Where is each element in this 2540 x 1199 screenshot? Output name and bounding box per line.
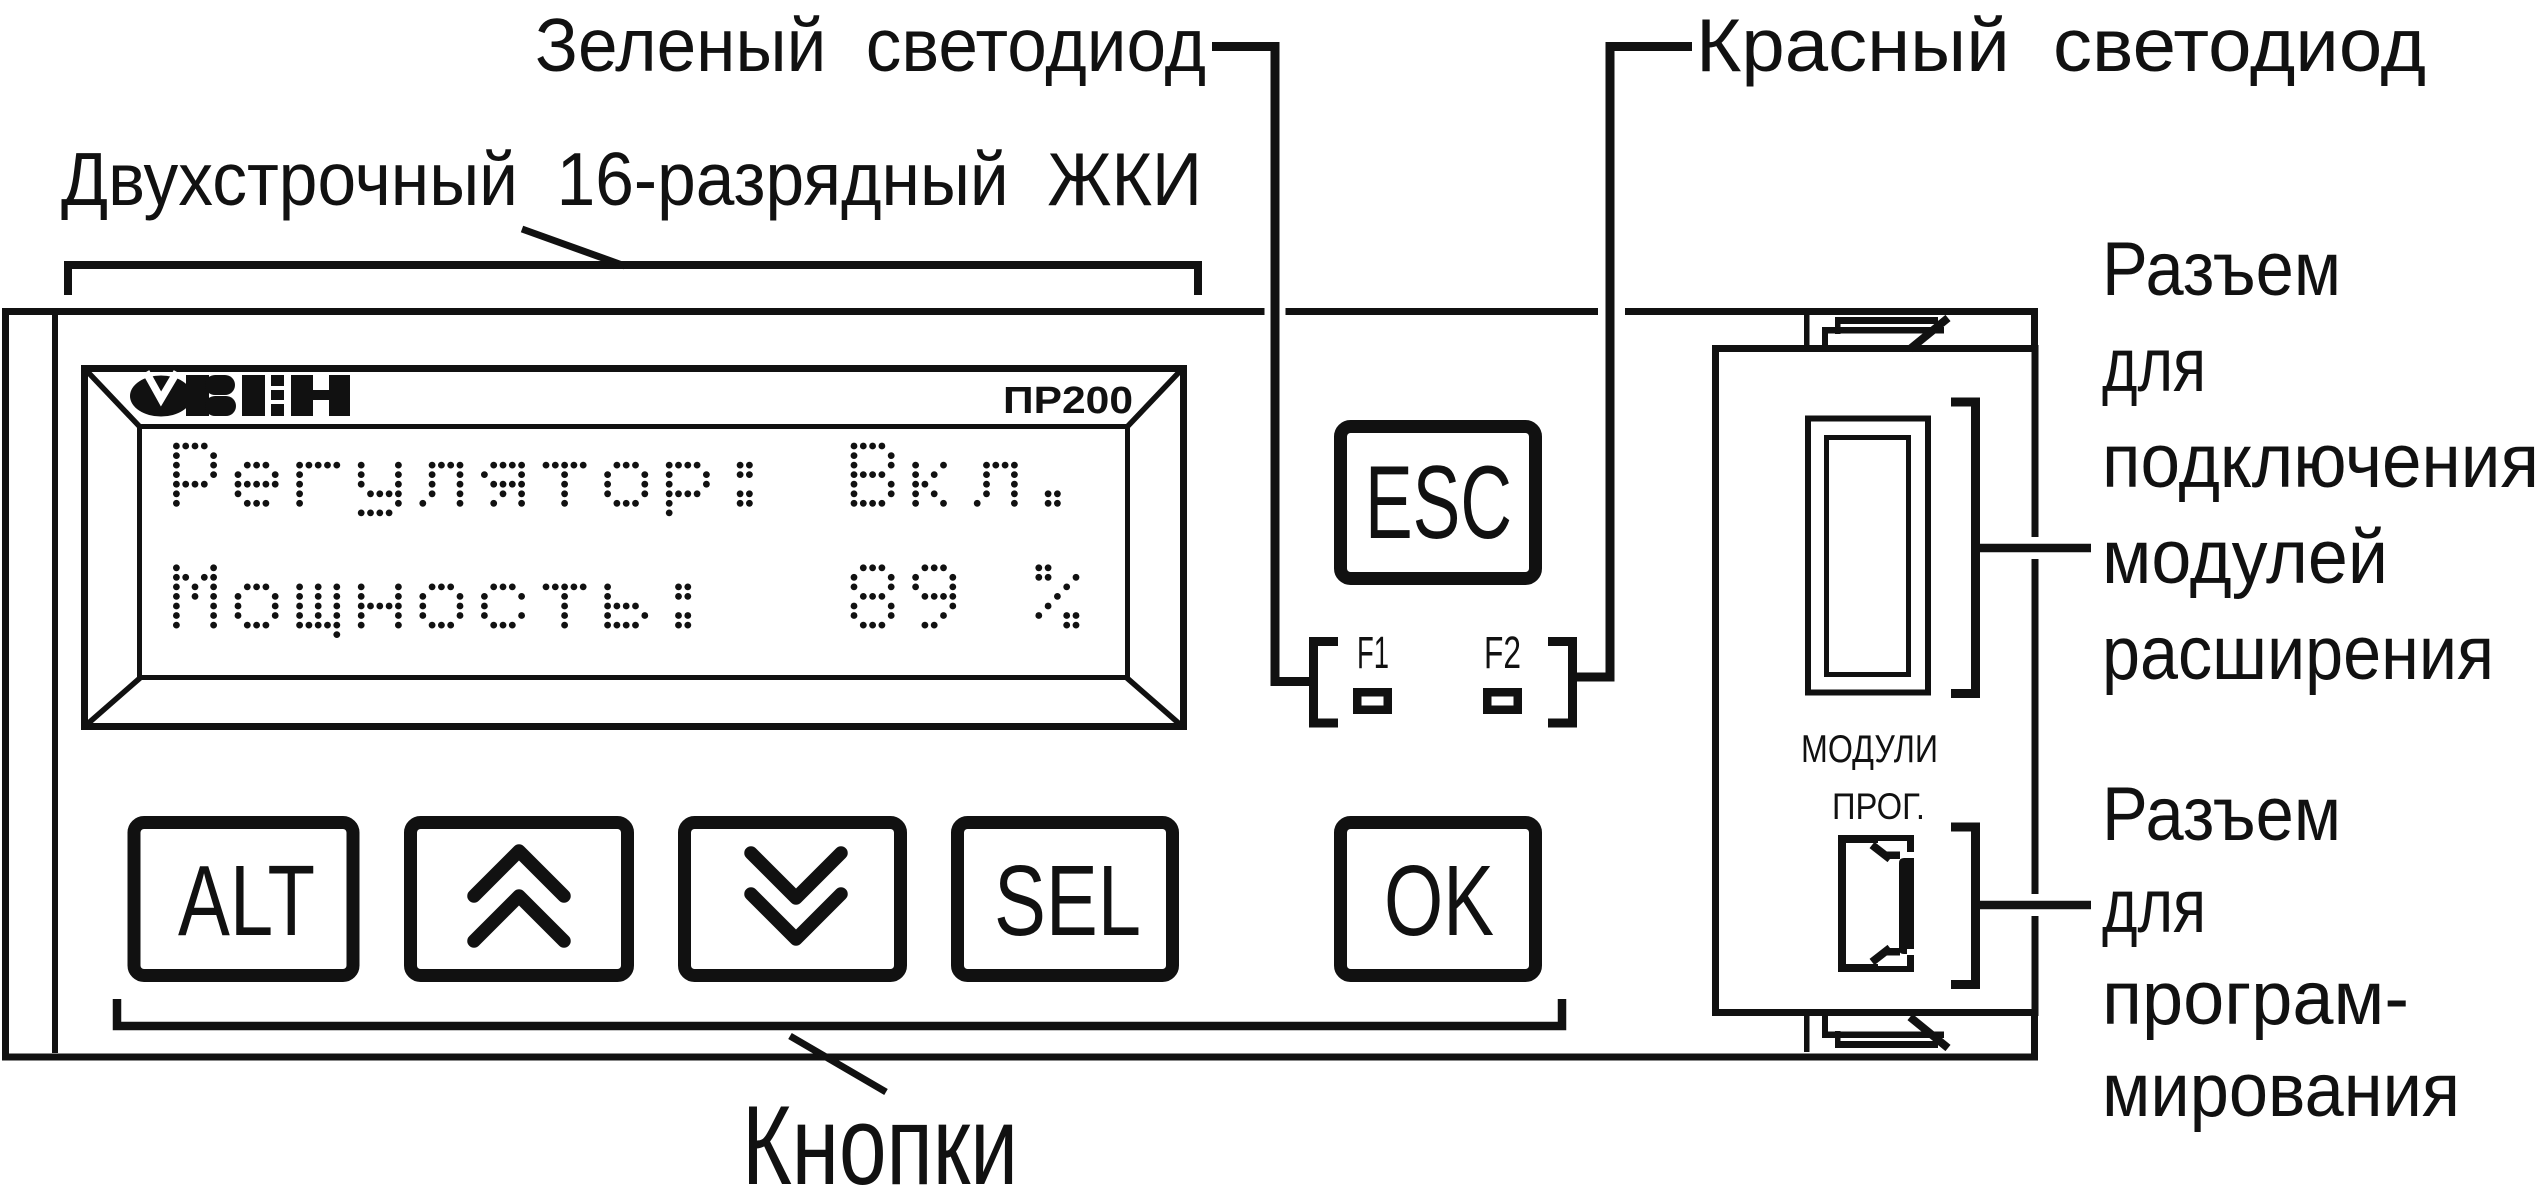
- svg-text:расширения: расширения: [2102, 611, 2494, 696]
- svg-text:для: для: [2102, 864, 2206, 949]
- svg-text:ESC: ESC: [1365, 445, 1512, 561]
- svg-text:для: для: [2102, 323, 2206, 408]
- svg-text:подключения: подключения: [2102, 419, 2539, 504]
- svg-text:ПРОГ.: ПРОГ.: [1832, 786, 1925, 827]
- svg-text:F1: F1: [1357, 627, 1389, 678]
- svg-text:мирования: мирования: [2102, 1048, 2460, 1133]
- svg-text:SEL: SEL: [994, 845, 1141, 957]
- svg-text:Разъем: Разъем: [2102, 772, 2341, 857]
- svg-text:Двухстрочный 16-разрядный ЖК: Двухстрочный 16-разрядный ЖКИ: [61, 137, 1202, 221]
- svg-text:Разъем: Разъем: [2102, 227, 2341, 312]
- svg-text:Кнопки: Кнопки: [742, 1083, 1018, 1199]
- svg-text:OK: OK: [1384, 845, 1494, 957]
- svg-text:програм-: програм-: [2102, 956, 2409, 1041]
- svg-text:ALT: ALT: [178, 845, 315, 957]
- svg-text:ПР200: ПР200: [1003, 380, 1133, 422]
- svg-text:Зеленый светодиод: Зеленый светодиод: [535, 3, 1206, 87]
- svg-text:модулей: модулей: [2102, 515, 2388, 600]
- svg-text:F2: F2: [1484, 627, 1521, 678]
- svg-text:Красный светодиод: Красный светодиод: [1696, 3, 2426, 87]
- svg-text:МОДУЛИ: МОДУЛИ: [1801, 728, 1938, 771]
